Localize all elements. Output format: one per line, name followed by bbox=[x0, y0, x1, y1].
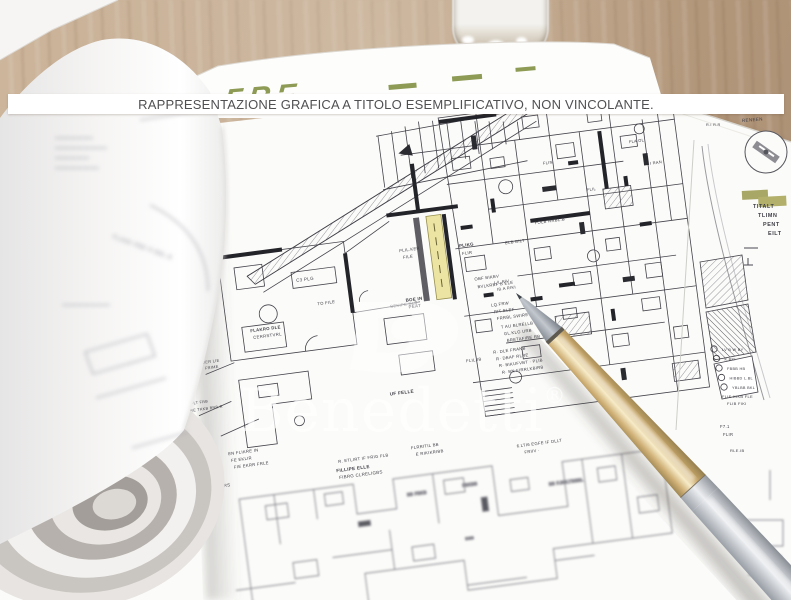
svg-text:LV B W BY: LV B W BY bbox=[722, 348, 744, 352]
compass-detail-circle bbox=[745, 131, 787, 173]
svg-text:FLIR: FLIR bbox=[723, 432, 733, 437]
photo-scene: FRE bbox=[0, 0, 791, 600]
svg-text:TITALT: TITALT bbox=[753, 204, 774, 210]
svg-text:TLIMN: TLIMN bbox=[758, 213, 777, 219]
disclaimer-text: RAPPRESENTAZIONE GRAFICA A TITOLO ESEMPL… bbox=[138, 97, 654, 112]
svg-text:EILT: EILT bbox=[768, 231, 782, 237]
svg-text:YBLBB BKL: YBLBB BKL bbox=[732, 386, 755, 390]
svg-text:FLIB FIKI: FLIB FIKI bbox=[727, 401, 747, 406]
svg-text:R.I R.R: R.I R.R bbox=[706, 123, 721, 127]
svg-text:FBBB HB: FBBB HB bbox=[727, 367, 746, 371]
svg-text:FLIE KIKB FLE: FLIE KIKB FLE bbox=[722, 394, 753, 399]
compass-label: RENEEN bbox=[742, 117, 763, 123]
svg-text:HIBBD L.BL: HIBBD L.BL bbox=[730, 377, 753, 381]
svg-text:PENT: PENT bbox=[763, 222, 780, 228]
svg-text:RLE.IB: RLE.IB bbox=[730, 448, 745, 453]
svg-text:K.BKI: K.BKI bbox=[725, 358, 736, 362]
svg-text:F7.1: F7.1 bbox=[720, 424, 730, 429]
disclaimer-banner: RAPPRESENTAZIONE GRAFICA A TITOLO ESEMPL… bbox=[8, 94, 784, 114]
blueprint-scene: FRE bbox=[0, 0, 791, 600]
